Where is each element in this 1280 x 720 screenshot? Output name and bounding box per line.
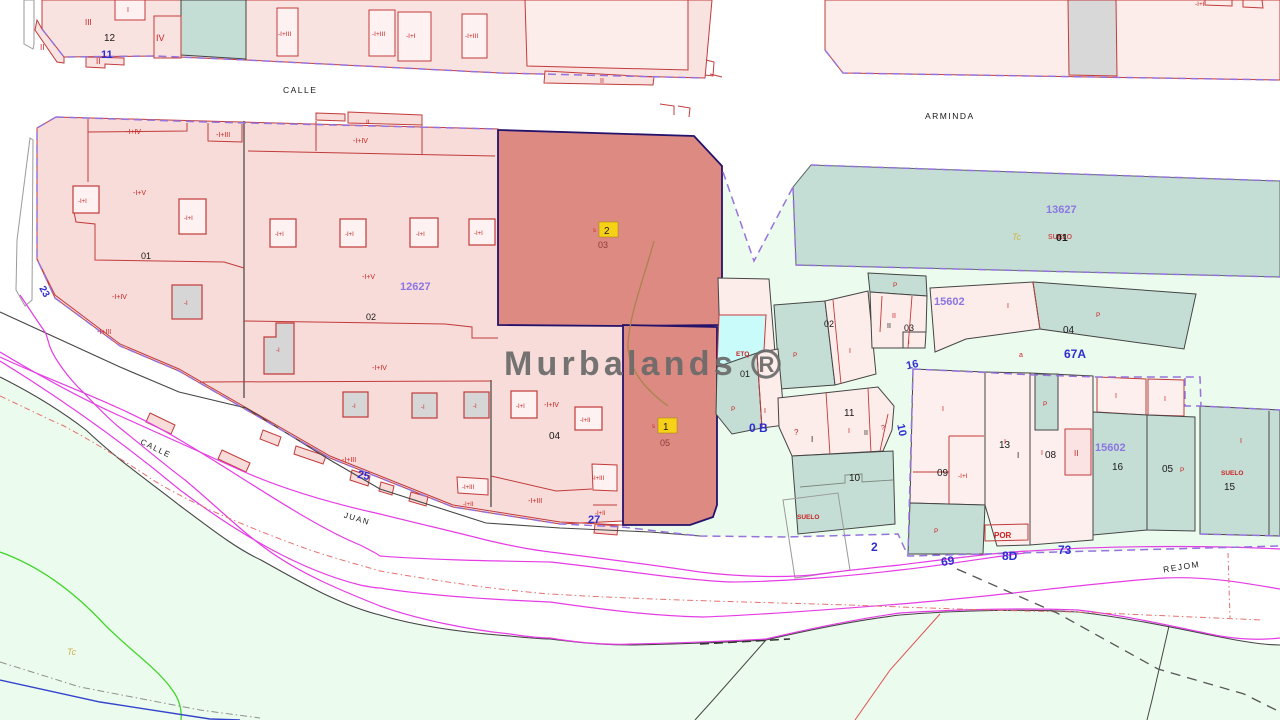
svg-text:04: 04: [549, 431, 561, 442]
svg-text:04: 04: [1063, 325, 1075, 336]
svg-text:12627: 12627: [400, 281, 431, 293]
svg-text:-I: -I: [421, 405, 425, 411]
svg-text:01: 01: [1056, 232, 1068, 244]
svg-text:05: 05: [660, 438, 670, 448]
svg-text:-I+III: -I+III: [465, 33, 478, 40]
svg-text:-I+III: -I+III: [592, 476, 605, 482]
svg-text:2: 2: [604, 226, 610, 237]
svg-text:-I+III: -I+III: [462, 485, 475, 491]
svg-text:03: 03: [598, 240, 608, 250]
svg-text:-I+I: -I+I: [958, 473, 968, 480]
svg-text:15: 15: [1224, 482, 1236, 493]
svg-text:-I+III: -I+III: [278, 31, 291, 38]
svg-text:II: II: [1074, 449, 1078, 458]
svg-text:03: 03: [904, 323, 914, 333]
svg-text:13627: 13627: [1046, 204, 1077, 216]
svg-text:Murbalands: Murbalands: [504, 345, 737, 383]
svg-text:11: 11: [101, 49, 113, 61]
svg-text:2: 2: [871, 540, 878, 554]
svg-text:II: II: [40, 43, 44, 52]
svg-text:II: II: [864, 430, 868, 437]
svg-text:I: I: [764, 408, 766, 415]
svg-text:I: I: [1115, 393, 1117, 400]
svg-text:-I: -I: [276, 348, 280, 354]
svg-text:I: I: [942, 406, 944, 413]
svg-text:II: II: [366, 119, 370, 126]
svg-text:P: P: [731, 406, 735, 413]
svg-text:73: 73: [1058, 543, 1072, 557]
svg-text:05: 05: [1162, 464, 1174, 475]
svg-text:-I+IV: -I+IV: [353, 138, 368, 145]
svg-text:P: P: [934, 528, 938, 535]
svg-text:II: II: [887, 323, 891, 330]
svg-text:I: I: [1007, 303, 1009, 310]
svg-text:-I: -I: [473, 404, 477, 410]
svg-text:09: 09: [937, 468, 949, 479]
svg-text:IV: IV: [156, 33, 165, 43]
svg-text:-I: -I: [184, 301, 188, 307]
svg-text:P: P: [1180, 467, 1184, 474]
svg-text:02: 02: [824, 319, 834, 329]
svg-text:27: 27: [588, 514, 600, 526]
svg-text:Tc: Tc: [67, 647, 77, 657]
svg-text:?: ?: [794, 428, 799, 437]
svg-text:15602: 15602: [1095, 442, 1126, 454]
svg-text:16: 16: [1112, 462, 1124, 473]
svg-text:a: a: [1019, 352, 1023, 359]
svg-text:08: 08: [1045, 450, 1057, 461]
svg-text:ARMINDA: ARMINDA: [925, 111, 975, 121]
svg-text:SUELO: SUELO: [797, 514, 819, 521]
svg-text:ETQ: ETQ: [736, 351, 749, 358]
svg-text:12: 12: [104, 33, 116, 44]
svg-text:-I+III: -I+III: [97, 329, 111, 336]
svg-text:-I+I: -I+I: [474, 231, 483, 237]
svg-text:01: 01: [141, 251, 151, 261]
svg-text:-I+I: -I+I: [406, 33, 416, 40]
svg-text:I: I: [849, 348, 851, 355]
svg-text:-I+III: -I+III: [372, 31, 385, 38]
svg-text:-I+IV: -I+IV: [544, 402, 559, 409]
svg-text:25: 25: [356, 469, 370, 483]
svg-text:CALLE: CALLE: [283, 85, 317, 95]
svg-text:-I+II: -I+II: [580, 418, 591, 424]
svg-text:s: s: [652, 424, 655, 430]
svg-text:-I+I: -I+I: [1195, 1, 1205, 8]
svg-text:III: III: [85, 18, 92, 27]
svg-text:I: I: [848, 428, 850, 435]
svg-text:-I+I: -I+I: [78, 199, 87, 205]
svg-text:I: I: [1164, 396, 1166, 403]
svg-text:-I+V: -I+V: [362, 274, 375, 281]
svg-text:I: I: [127, 7, 129, 14]
svg-text:-I+IV: -I+IV: [372, 365, 387, 372]
svg-text:-I+I: -I+I: [516, 404, 525, 410]
svg-text:Tc: Tc: [1012, 232, 1022, 242]
svg-text:-I+I: -I+I: [275, 232, 284, 238]
svg-text:R: R: [759, 352, 775, 377]
svg-text:02: 02: [366, 312, 376, 322]
svg-text:-I+V: -I+V: [133, 190, 146, 197]
svg-text:P: P: [893, 282, 897, 289]
svg-text:01: 01: [740, 369, 750, 379]
svg-text:-I+III: -I+III: [528, 498, 542, 505]
svg-text:-I+IV: -I+IV: [126, 129, 141, 136]
svg-text:67A: 67A: [1064, 347, 1086, 361]
svg-text:P: P: [1096, 312, 1100, 319]
svg-text:-I+III: -I+III: [216, 132, 230, 139]
svg-text:I: I: [811, 435, 813, 444]
svg-text:10: 10: [849, 473, 861, 484]
svg-text:II: II: [600, 78, 604, 85]
svg-text:P: P: [793, 352, 797, 359]
svg-text:-I+I: -I+I: [345, 232, 354, 238]
svg-text:-I+III: -I+III: [342, 457, 356, 464]
svg-text:8D: 8D: [1002, 549, 1018, 563]
svg-text:s: s: [593, 228, 596, 234]
svg-text:-I+I: -I+I: [184, 216, 193, 222]
svg-text:-I+I: -I+I: [416, 232, 425, 238]
svg-text:15602: 15602: [934, 296, 965, 308]
svg-text:I: I: [1017, 451, 1019, 460]
svg-text:69: 69: [940, 553, 955, 569]
svg-text:II: II: [96, 57, 100, 66]
svg-text:-I: -I: [352, 404, 356, 410]
svg-text:POR: POR: [994, 531, 1012, 540]
svg-text:11: 11: [844, 408, 855, 419]
svg-text:16: 16: [905, 358, 919, 372]
svg-text:10: 10: [894, 423, 908, 437]
svg-text:1: 1: [663, 422, 669, 433]
svg-text:I: I: [1041, 450, 1043, 457]
svg-text:-I+II: -I+II: [463, 502, 474, 508]
svg-text:P: P: [1043, 401, 1047, 408]
svg-text:0 B: 0 B: [749, 421, 768, 435]
svg-text:II: II: [892, 313, 896, 320]
svg-text:-I+IV: -I+IV: [112, 294, 127, 301]
svg-text:SUELO: SUELO: [1221, 470, 1243, 477]
svg-text:I: I: [1240, 438, 1242, 445]
svg-text:?: ?: [881, 425, 885, 432]
svg-text:I: I: [1004, 439, 1006, 446]
